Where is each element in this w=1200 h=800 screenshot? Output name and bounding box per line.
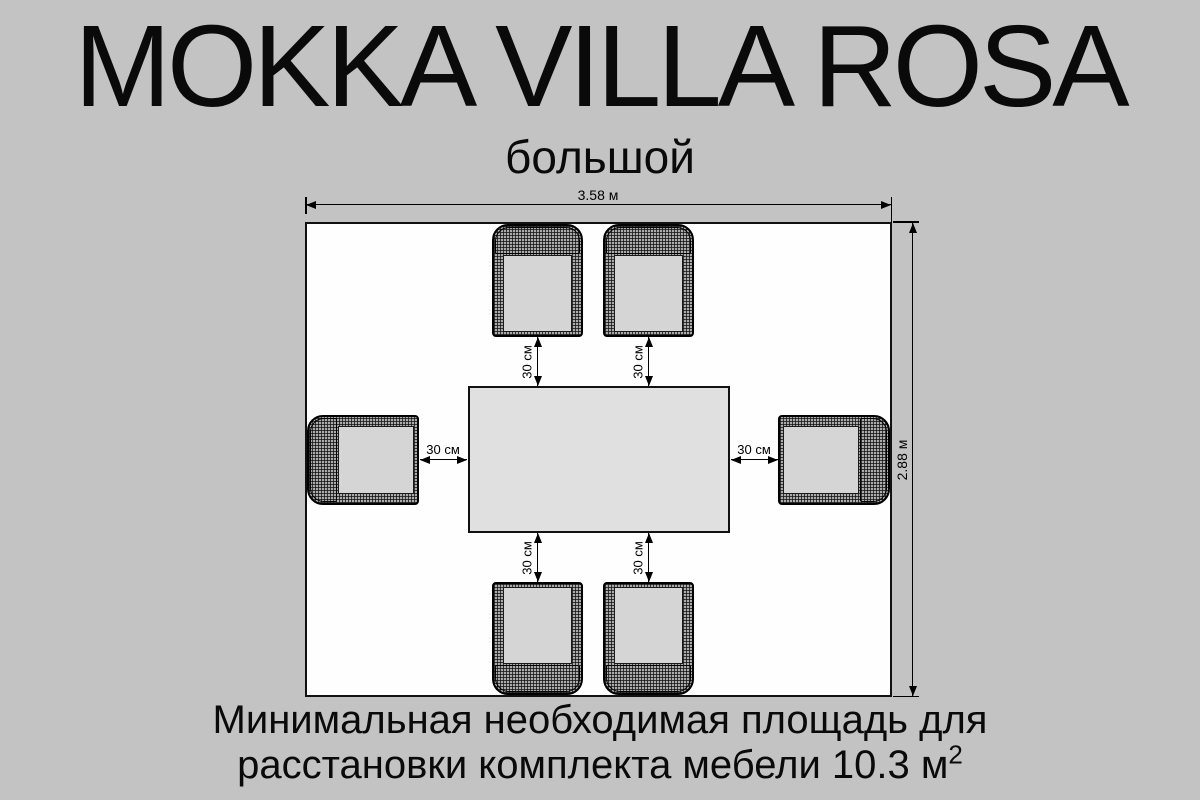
dim-arrow (457, 456, 467, 464)
clearance-label-left: 30 см (426, 442, 460, 457)
chair-seat (503, 587, 572, 664)
chair-seat (614, 587, 683, 664)
dim-arrow (731, 456, 741, 464)
footer-line-1: Минимальная необходимая площадь для (0, 698, 1200, 743)
dim-width-line (305, 204, 892, 205)
chair-back-cushion (606, 665, 691, 692)
dim-arrow (909, 686, 917, 696)
dim-arrow (420, 456, 430, 464)
dim-arrow (645, 572, 653, 582)
dim-arrow (881, 201, 891, 209)
chair-seat (338, 426, 414, 494)
chair-back-cushion (860, 418, 887, 502)
footer-line-2: расстановки комплекта мебели 10.3 м2 (0, 743, 1200, 788)
chair-top-left (492, 224, 583, 337)
dim-height-line (912, 222, 913, 697)
dim-arrow (534, 337, 542, 347)
dim-arrow (768, 456, 778, 464)
clearance-label-bottom-left: 30 см (520, 541, 535, 575)
chair-seat (783, 426, 859, 494)
chair-back-cushion (495, 665, 580, 692)
page-subtitle: большой (0, 134, 1200, 180)
dim-arrow (645, 337, 653, 347)
dim-width-label: 3.58 м (578, 187, 619, 203)
chair-seat (614, 255, 683, 332)
dim-arrow (645, 533, 653, 543)
dim-arrow (909, 223, 917, 233)
area-superscript: 2 (948, 740, 962, 770)
chair-bottom-right (603, 582, 694, 695)
clearance-label-bottom-right: 30 см (631, 541, 646, 575)
dim-arrow (306, 201, 316, 209)
chair-right (778, 415, 890, 505)
chair-back-cushion (310, 418, 337, 502)
clearance-label-top-left: 30 см (520, 345, 535, 379)
footer-line-2-text: расстановки комплекта мебели 10.3 м (237, 743, 948, 787)
footer-note: Минимальная необходимая площадь для расс… (0, 698, 1200, 788)
chair-left (307, 415, 419, 505)
dining-table (468, 386, 730, 533)
dim-arrow (534, 533, 542, 543)
dim-arrow (534, 572, 542, 582)
clearance-label-right: 30 см (737, 442, 771, 457)
chair-top-right (603, 224, 694, 337)
page-title: MOKKA VILLA ROSA (0, 8, 1200, 124)
clearance-label-top-right: 30 см (631, 345, 646, 379)
chair-bottom-left (492, 582, 583, 695)
chair-back-cushion (495, 227, 580, 254)
infographic-page: MOKKA VILLA ROSA большой (0, 0, 1200, 800)
chair-back-cushion (606, 227, 691, 254)
chair-seat (503, 255, 572, 332)
dim-arrow (534, 376, 542, 386)
dim-height-label: 2.88 м (894, 440, 910, 481)
dim-arrow (645, 376, 653, 386)
